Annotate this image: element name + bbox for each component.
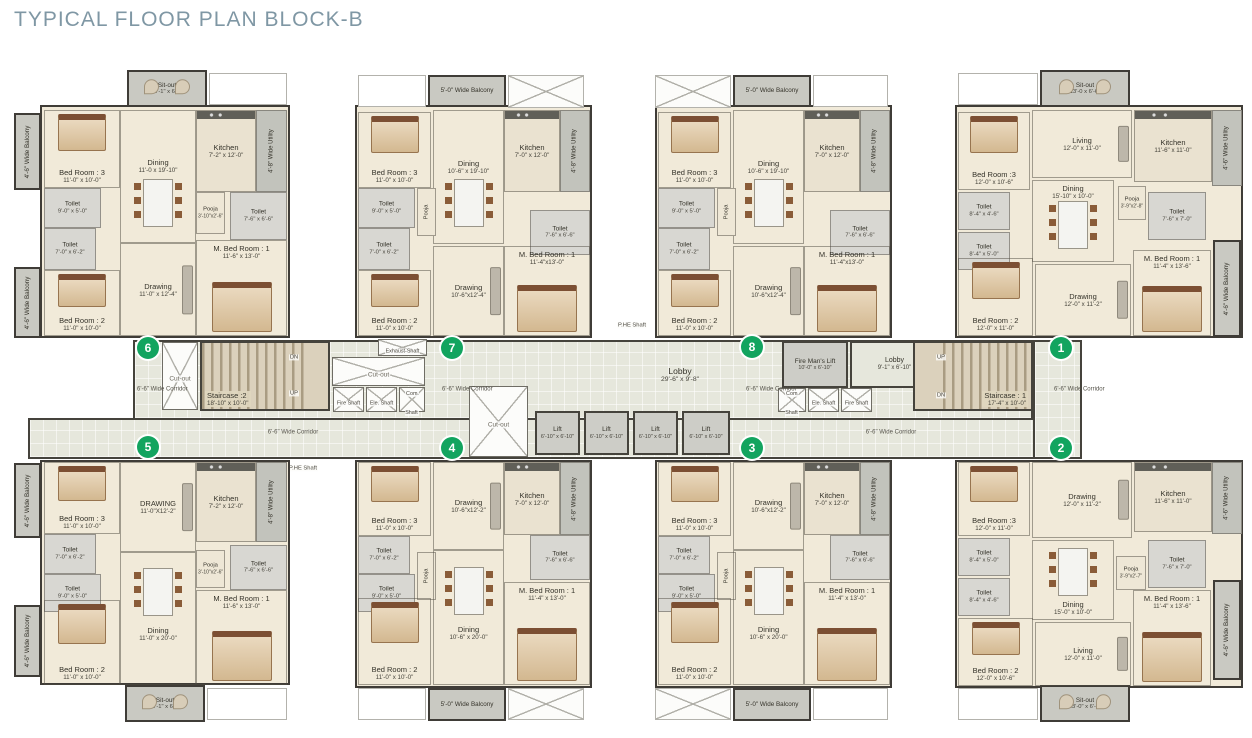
corridor-hlabel: 6'-6" Wide Corridor — [238, 427, 348, 439]
label: M. Bed Room : 111'-6" x 13'-0" — [198, 244, 285, 260]
open — [813, 688, 888, 720]
label-dim: 11'-0" x 10'-0" — [46, 325, 118, 332]
label-text: Dining — [435, 625, 502, 634]
room-kitchen: Kitchen7'-2" x 12'-0" — [196, 462, 256, 542]
corridor-shaft: Ele. Shaft — [366, 387, 397, 412]
label-text: Kitchen — [1136, 138, 1210, 147]
kitchen-counter-icon — [505, 463, 559, 471]
label: Sit-out13'-0 x 6'-6" — [1043, 81, 1127, 96]
label-text: Toilet — [660, 201, 713, 209]
room-toilet: Toilet7'-6" x 6'-6" — [530, 535, 590, 580]
label-dim: 15'-10" x 10'-0" — [1034, 193, 1112, 200]
label-dim: 7'-0" x 6'-2" — [46, 554, 94, 561]
hatch — [655, 75, 731, 108]
balcony: 4'-6" Wide Balcony — [1213, 580, 1241, 680]
label-text: Fire Shaft — [336, 400, 361, 406]
chair-icon — [1096, 694, 1111, 709]
label-text: P.HE Shaft — [288, 465, 318, 471]
label: Dining11'-0" x 20'-0" — [122, 626, 194, 642]
room-toilet: Toilet7'-0" x 6'-2" — [358, 228, 410, 270]
room-utility: 4'-8" Wide Utility — [860, 462, 890, 535]
label-dim: 8'-4" x 4'-6" — [960, 597, 1008, 604]
label: 5'-0" Wide Balcony — [431, 87, 503, 95]
balcony: 5'-0" Wide Balcony — [733, 75, 811, 107]
bed-icon — [671, 602, 719, 643]
corridor-shaft: Exhaust-Shaft — [378, 339, 427, 356]
label-text: P.HE Shaft — [617, 322, 647, 328]
label-dim: 11'-0" x 10'-0" — [46, 523, 118, 530]
label: Toilet7'-6" x 6'-6" — [532, 225, 588, 240]
label: Living12'-0" x 11'-0" — [1034, 136, 1130, 152]
label-dim: 7'-0" x 12'-0" — [806, 499, 858, 506]
label-text: 6'-6" Wide Corridor — [837, 429, 945, 436]
label-text: Kitchen — [806, 490, 858, 499]
label-text: Toilet — [832, 550, 888, 558]
label-text: Dining — [1034, 600, 1112, 609]
room-living: Living12'-0" x 11'-0" — [1035, 622, 1131, 686]
open — [358, 688, 426, 720]
bed-icon — [671, 116, 719, 153]
sofa-icon — [182, 265, 193, 314]
sofa-icon — [790, 483, 801, 530]
label-text: Pooja — [423, 205, 430, 220]
label-text: Living — [1037, 646, 1129, 655]
open — [958, 73, 1038, 105]
label-dim: 12'-1" x 6'-6" — [128, 704, 202, 711]
corridor-clabel: Lobby29'-6" x 9'-8" — [600, 362, 760, 388]
bed-icon — [1142, 632, 1202, 682]
label-text: Bed Room : 3 — [360, 516, 429, 525]
label-text: Toilet — [360, 548, 408, 556]
label-dim: 10'-0" x 6'-10" — [785, 365, 845, 371]
room-mbed: M. Bed Room : 111'-4"x13'-0" — [504, 246, 590, 336]
label-dim: 7'-6" x 7'-0" — [1150, 216, 1204, 223]
room-bedroom: Bed Room :312'-0" x 10'-6" — [958, 112, 1030, 190]
room-bedroom: Bed Room :312'-0" x 11'-0" — [958, 462, 1030, 536]
label-text: Lobby — [601, 366, 759, 376]
label-dim: 7'-0" x 6'-2" — [46, 249, 94, 256]
label-text: Dining — [122, 626, 194, 635]
room-toilet: Toilet9'-0" x 5'-0" — [658, 188, 715, 228]
corridor-shaft: Ele. Shaft — [808, 388, 839, 412]
sitout: Sit-out12'-1" x 6'-6" — [127, 70, 207, 107]
corridor-vlabel: 6'-6" Wide Corridor — [441, 361, 457, 418]
label: Toilet7'-0" x 6'-2" — [46, 242, 94, 257]
label: M. Bed Room : 111'-4" x 13'-0" — [806, 586, 888, 602]
room-dining: Dining10'-6" x 19'-10" — [433, 110, 504, 244]
label-dim: 12'-0" x 11'-2" — [1037, 301, 1129, 308]
room-mbed: M. Bed Room : 111'-4" x 13'-0" — [804, 582, 890, 685]
label-dim: 13'-0 x 6'-6" — [1043, 89, 1127, 96]
label-text: 4'-6" Wide Utility — [1223, 476, 1230, 520]
label: Bed Room : 211'-0" x 10'-0" — [660, 665, 729, 681]
corridor-cutout: Cut-out — [332, 357, 425, 386]
kitchen-counter-icon — [805, 463, 859, 471]
label-text: Toilet — [960, 204, 1008, 212]
room-bedroom: Bed Room : 211'-0" x 10'-0" — [44, 600, 120, 685]
balcony: 5'-0" Wide Balcony — [428, 688, 506, 721]
sofa-icon — [490, 483, 501, 530]
room-bedroom: Bed Room : 311'-0" x 10'-0" — [358, 462, 431, 536]
label: Ele. Shaft — [810, 390, 837, 409]
room-toilet: Toilet7'-0" x 6'-2" — [44, 534, 96, 574]
room-kitchen: Kitchen7'-0" x 12'-0" — [804, 462, 860, 535]
sofa-icon — [1118, 480, 1129, 520]
label-text: Bed Room : 2 — [660, 665, 729, 674]
room-kitchen: Kitchen7'-2" x 12'-0" — [196, 110, 256, 192]
corridor-shaft: Com. Shaft — [778, 388, 806, 412]
label: Toilet9'-0" x 5'-0" — [360, 201, 413, 216]
label: Kitchen7'-0" x 12'-0" — [506, 143, 558, 159]
label-dim: 11'-0" x 10'-0" — [660, 177, 729, 184]
label: Pooja — [723, 569, 730, 584]
corridor-shaft: Com. Shaft — [399, 387, 425, 412]
chair-icon — [1059, 79, 1074, 94]
label-text: M. Bed Room : 1 — [806, 250, 888, 259]
bed-icon — [212, 282, 272, 332]
bed-icon — [371, 602, 419, 643]
label-dim: 12'-0" x 11'-0" — [1037, 655, 1129, 662]
label-dim: 11'-4" x 13'-0" — [506, 595, 588, 602]
label: Pooja3'-9"x2'-8" — [1120, 197, 1144, 210]
label-text: Dining — [122, 158, 194, 167]
corridor-lift: Lift6'-10" x 6'-10" — [584, 411, 629, 455]
room-drawing: Drawing12'-0" x 11'-2" — [1035, 264, 1131, 336]
label: Fire Man's Lift10'-0" x 6'-10" — [785, 357, 845, 371]
label: Dining15'-0" x 10'-0" — [1034, 600, 1112, 616]
room-pooja: Pooja — [717, 188, 736, 236]
label-text: M. Bed Room : 1 — [1135, 594, 1209, 603]
label: P.HE Shaft — [611, 312, 653, 331]
room-utility: 4'-8" Wide Utility — [860, 110, 890, 192]
label: Toilet7'-6" x 7'-0" — [1150, 557, 1204, 572]
label-text: Toilet — [960, 590, 1008, 598]
label-dim: 18'-10" x 10'-0" — [207, 400, 249, 407]
room-toilet: Toilet7'-0" x 6'-2" — [44, 228, 96, 270]
label-dim: 12'-0" x 11'-2" — [1034, 501, 1130, 508]
label: 4'-6" Wide Balcony — [24, 276, 32, 329]
label-text: Lift — [538, 426, 577, 434]
room-dining: Dining10'-6" x 20'-0" — [433, 550, 504, 685]
room-bedroom: Bed Room : 212'-0" x 11'-0" — [958, 258, 1033, 336]
room-toilet: Toilet7'-0" x 6'-2" — [358, 536, 410, 574]
label-dim: 11'-0" x 10'-0" — [360, 177, 429, 184]
label: Bed Room : 311'-0" x 10'-0" — [46, 168, 118, 184]
label-dim: 13'-0" x 6'-6" — [1043, 704, 1127, 711]
label: 5'-0" Wide Balcony — [736, 87, 808, 95]
label-dim: 11'-0" x 10'-0" — [46, 674, 118, 681]
label: 4'-6" Wide Balcony — [24, 615, 32, 668]
label: Toilet8'-4" x 5'-0" — [960, 244, 1008, 259]
corridor-slabel: P.HE Shaft — [610, 317, 654, 326]
corridor-cutout: Cut-out — [469, 386, 528, 457]
room-drawing: DRAWING11'-0"X12'-2" — [120, 462, 196, 552]
bed-icon — [212, 631, 272, 681]
label-dim: 7'-2" x 12'-0" — [198, 503, 254, 510]
label-dim: 6'-10" x 6'-10" — [636, 434, 675, 440]
label-dim: 6'-10" x 6'-10" — [587, 434, 626, 440]
label: Sit-out13'-0" x 6'-6" — [1043, 696, 1127, 711]
label-dim: 9'-0" x 5'-0" — [660, 208, 713, 215]
room-bedroom: Bed Room : 211'-0" x 10'-0" — [658, 598, 731, 685]
label-text: Pooja — [423, 569, 430, 584]
label-dim: 12'-1" x 6'-6" — [130, 89, 204, 96]
label-text: Toilet — [360, 586, 413, 594]
open — [209, 73, 287, 105]
label: Bed Room : 311'-0" x 10'-0" — [360, 516, 429, 532]
balcony: 4'-6" Wide Balcony — [14, 463, 41, 538]
label-text: Toilet — [46, 586, 99, 594]
dining-table-icon — [1058, 548, 1088, 596]
room-dining: Dining11'-0 x 19'-10" — [120, 110, 196, 243]
label: Bed Room :312'-0" x 11'-0" — [960, 516, 1028, 532]
label-dim: 7'-0" x 6'-2" — [360, 555, 408, 562]
label: Bed Room : 311'-0" x 10'-0" — [46, 514, 118, 530]
balcony: 4'-6" Wide Balcony — [14, 605, 41, 677]
label: Kitchen7'-0" x 12'-0" — [806, 490, 858, 506]
label-text: 6'-6" Wide Corridor — [1054, 386, 1068, 393]
room-mbed: M. Bed Room : 111'-4" x 13'-6" — [1133, 590, 1211, 686]
room-drawing: Drawing10'-6"x12'-2" — [733, 462, 804, 550]
label-text: Toilet — [360, 201, 413, 209]
label-dim: 6'-10" x 6'-10" — [685, 434, 727, 440]
label-dim: 12'-0" x 10'-6" — [960, 179, 1028, 186]
label-text: Toilet — [532, 550, 588, 558]
label: 6'-6" Wide Corridor — [837, 429, 945, 436]
label: M. Bed Room : 111'-4" x 13'-6" — [1135, 594, 1209, 610]
unit-number-2: 2 — [1050, 437, 1072, 459]
label-dim: 11'-0" x 10'-0" — [660, 525, 729, 532]
sofa-icon — [182, 483, 193, 531]
label-dim: 7'-6" x 6'-6" — [532, 558, 588, 565]
label-text: Kitchen — [198, 143, 254, 152]
label: Dining10'-6" x 20'-0" — [735, 625, 802, 641]
label-dim: 7'-6" x 6'-6" — [232, 568, 285, 575]
label-dim: 7'-0" x 12'-0" — [506, 499, 558, 506]
room-utility: 4'-8" Wide Utility — [256, 462, 287, 542]
bed-icon — [58, 114, 106, 151]
label: Staircase :218'-10" x 10'-0" — [205, 391, 251, 407]
label-text: Kitchen — [506, 143, 558, 152]
label: 4'-6" Wide Utility — [1223, 476, 1230, 520]
room-toilet: Toilet8'-4" x 4'-6" — [958, 192, 1010, 230]
kitchen-counter-icon — [505, 111, 559, 119]
label: Sit-out12'-1" x 6'-6" — [130, 81, 204, 96]
label-text: Drawing — [1037, 292, 1129, 301]
chair-icon — [173, 694, 188, 709]
label-text: 5'-0" Wide Balcony — [431, 701, 503, 709]
label: Bed Room :312'-0" x 10'-6" — [960, 170, 1028, 186]
room-dining: Dining10'-6" x 20'-0" — [733, 550, 804, 685]
label: 4'-8" Wide Utility — [571, 477, 578, 521]
dining-table-icon — [754, 179, 784, 227]
open — [358, 75, 426, 107]
label: Lift6'-10" x 6'-10" — [685, 426, 727, 440]
label: Kitchen11'-6" x 11'-0" — [1136, 138, 1210, 154]
label-text: Toilet — [660, 548, 708, 556]
label: Toilet7'-6" x 7'-0" — [1150, 209, 1204, 224]
bed-icon — [817, 285, 877, 332]
bed-icon — [970, 116, 1018, 153]
label-text: 4'-8" Wide Utility — [268, 480, 275, 524]
label-dim: 7'-2" x 12'-0" — [198, 152, 254, 159]
label: 4'-8" Wide Utility — [268, 480, 275, 524]
label-dim: 10'-6" x 20'-0" — [735, 634, 802, 641]
room-drawing: Drawing10'-6"x12'-4" — [733, 246, 804, 336]
label-dim: 11'-4" x 13'-0" — [806, 595, 888, 602]
label-text: Living — [1034, 136, 1130, 145]
label-dim: 11'-4" x 13'-6" — [1135, 603, 1209, 610]
label-text: Sit-out — [1043, 81, 1127, 89]
label-dim: 12'-0" x 11'-0" — [960, 525, 1028, 532]
room-mbed: M. Bed Room : 111'-4" x 13'-0" — [504, 582, 590, 685]
label-text: Lift — [587, 426, 626, 434]
label-dim: 7'-0" x 6'-2" — [660, 555, 708, 562]
label: Dining10'-6" x 19'-10" — [735, 159, 802, 175]
room-toilet: Toilet7'-0" x 6'-2" — [658, 536, 710, 574]
label-text: 6'-6" Wide Corridor — [746, 386, 760, 393]
label-text: M. Bed Room : 1 — [198, 594, 285, 603]
room-toilet: Toilet7'-6" x 6'-6" — [230, 545, 287, 590]
room-utility: 4'-6" Wide Utility — [1212, 110, 1242, 186]
label: Toilet8'-4" x 4'-6" — [960, 204, 1008, 219]
label: 4'-8" Wide Utility — [268, 129, 275, 173]
room-utility: 4'-8" Wide Utility — [256, 110, 287, 192]
label-dim: 11'-4"x13'-0" — [806, 259, 888, 266]
label-text: Lift — [636, 426, 675, 434]
room-dining: Dining11'-0" x 20'-0" — [120, 552, 196, 685]
label-text: M. Bed Room : 1 — [198, 244, 285, 253]
label-text: Kitchen — [506, 490, 558, 499]
label: Drawing12'-0" x 11'-2" — [1034, 492, 1130, 508]
corridor-stairs: Staircase :218'-10" x 10'-0" — [200, 341, 330, 411]
label: Cut-out — [164, 366, 196, 385]
room-kitchen: Kitchen7'-0" x 12'-0" — [804, 110, 860, 192]
corridor-hlabel: 6'-6" Wide Corridor — [836, 427, 946, 439]
label: Bed Room : 212'-0" x 10'-6" — [960, 666, 1031, 682]
corridor-shaft: Fire Shaft — [333, 387, 364, 412]
label-text: Toilet — [960, 244, 1008, 252]
label: Bed Room : 211'-0" x 10'-0" — [46, 665, 118, 681]
room-kitchen: Kitchen7'-0" x 12'-0" — [504, 462, 560, 535]
label: Ele. Shaft — [368, 390, 395, 409]
open — [207, 688, 287, 720]
label-text: Pooja — [1118, 567, 1144, 574]
dining-table-icon — [1058, 201, 1088, 249]
corridor-slabel: UP — [930, 349, 952, 358]
label: 6'-6" Wide Corridor — [1054, 386, 1068, 393]
sofa-icon — [490, 267, 501, 315]
sofa-icon — [790, 267, 801, 315]
label: Bed Room : 311'-0" x 10'-0" — [360, 168, 429, 184]
bed-icon — [371, 274, 419, 307]
label-dim: 11'-6" x 13'-0" — [198, 253, 285, 260]
label-dim: 7'-0" x 12'-0" — [506, 152, 558, 159]
label: Living12'-0" x 11'-0" — [1037, 646, 1129, 662]
room-drawing: Drawing12'-0" x 11'-2" — [1032, 462, 1132, 538]
label-dim: 9'-0" x 5'-0" — [360, 208, 413, 215]
bed-icon — [517, 628, 577, 681]
label: Lift6'-10" x 6'-10" — [538, 426, 577, 440]
label-text: Bed Room : 3 — [660, 168, 729, 177]
sofa-icon — [1117, 281, 1128, 319]
label-text: Dining — [435, 159, 502, 168]
hatch — [508, 75, 584, 108]
label: Sit-out12'-1" x 6'-6" — [128, 696, 202, 711]
room-pooja: Pooja3'-10"x2'-6" — [196, 550, 225, 588]
room-bedroom: Bed Room : 311'-0" x 10'-0" — [44, 110, 120, 188]
label: Toilet7'-6" x 6'-6" — [232, 209, 285, 224]
sitout: Sit-out12'-1" x 6'-6" — [125, 685, 205, 722]
label: 4'-6" Wide Utility — [1223, 126, 1230, 170]
label-text: Toilet — [46, 547, 94, 555]
label: Toilet9'-0" x 5'-0" — [46, 201, 99, 216]
corridor-vlabel: 6'-6" Wide Corridor — [136, 361, 152, 418]
label: Fire Shaft — [843, 390, 870, 409]
label-text: Cut-out — [168, 375, 191, 382]
kitchen-counter-icon — [1135, 463, 1211, 471]
label-dim: 8'-4" x 4'-6" — [960, 211, 1008, 218]
open — [958, 688, 1038, 720]
label-text: Cut-out — [487, 421, 510, 428]
label: Toilet8'-4" x 4'-6" — [960, 590, 1008, 605]
label: Pooja — [423, 205, 430, 220]
room-kitchen: Kitchen11'-6" x 11'-0" — [1134, 110, 1212, 182]
corridor-vlabel: 6'-6" Wide Corridor — [1053, 361, 1069, 418]
room-bedroom: Bed Room : 311'-0" x 10'-0" — [44, 462, 120, 534]
label: Bed Room : 211'-0" x 10'-0" — [46, 316, 118, 332]
room-toilet: Toilet7'-6" x 7'-0" — [1148, 540, 1206, 588]
label-text: Dining — [735, 159, 802, 168]
label-dim: 11'-0" x 10'-0" — [660, 674, 729, 681]
label-dim: 11'-4"x13'-0" — [506, 259, 588, 266]
label: Toilet7'-6" x 6'-6" — [832, 225, 888, 240]
label-dim: 7'-0" x 6'-2" — [360, 249, 408, 256]
room-mbed: M. Bed Room : 111'-6" x 13'-0" — [196, 590, 287, 685]
label-dim: 3'-10"x2'-6" — [198, 213, 223, 219]
label-text: Bed Room : 2 — [46, 316, 118, 325]
label-text: Fire Shaft — [844, 400, 869, 406]
label-dim: 10'-6" x 20'-0" — [435, 634, 502, 641]
room-utility: 4'-8" Wide Utility — [560, 462, 590, 535]
room-living: Living12'-0" x 11'-0" — [1032, 110, 1132, 178]
corridor-slabel: DN — [283, 349, 305, 358]
label-text: 5'-0" Wide Balcony — [736, 87, 808, 95]
label-dim: 11'-6" x 13'-0" — [198, 603, 285, 610]
label: Toilet8'-4" x 5'-0" — [960, 550, 1008, 565]
room-toilet: Toilet7'-6" x 7'-0" — [1148, 192, 1206, 240]
unit-number-8: 8 — [741, 336, 763, 358]
label-dim: 7'-6" x 6'-6" — [232, 216, 285, 223]
bed-icon — [671, 466, 719, 502]
label: M. Bed Room : 111'-6" x 13'-0" — [198, 594, 285, 610]
hatch — [655, 688, 731, 720]
bed-icon — [817, 628, 877, 681]
label-dim: 9'-0" x 5'-0" — [46, 208, 99, 215]
hatch — [508, 688, 584, 720]
label-dim: 11'-0" x 10'-0" — [46, 177, 118, 184]
label: M. Bed Room : 111'-4"x13'-0" — [806, 250, 888, 266]
label-text: Toilet — [232, 209, 285, 217]
label-text: Drawing — [1034, 492, 1130, 501]
dining-table-icon — [143, 568, 173, 616]
label-text: 4'-6" Wide Balcony — [1223, 604, 1231, 657]
label: Exhaust-Shaft — [380, 338, 425, 357]
room-kitchen: Kitchen11'-6" x 11'-0" — [1134, 462, 1212, 532]
label: Pooja — [723, 205, 730, 220]
label: Cut-out — [471, 412, 526, 431]
room-kitchen: Kitchen7'-0" x 12'-0" — [504, 110, 560, 192]
